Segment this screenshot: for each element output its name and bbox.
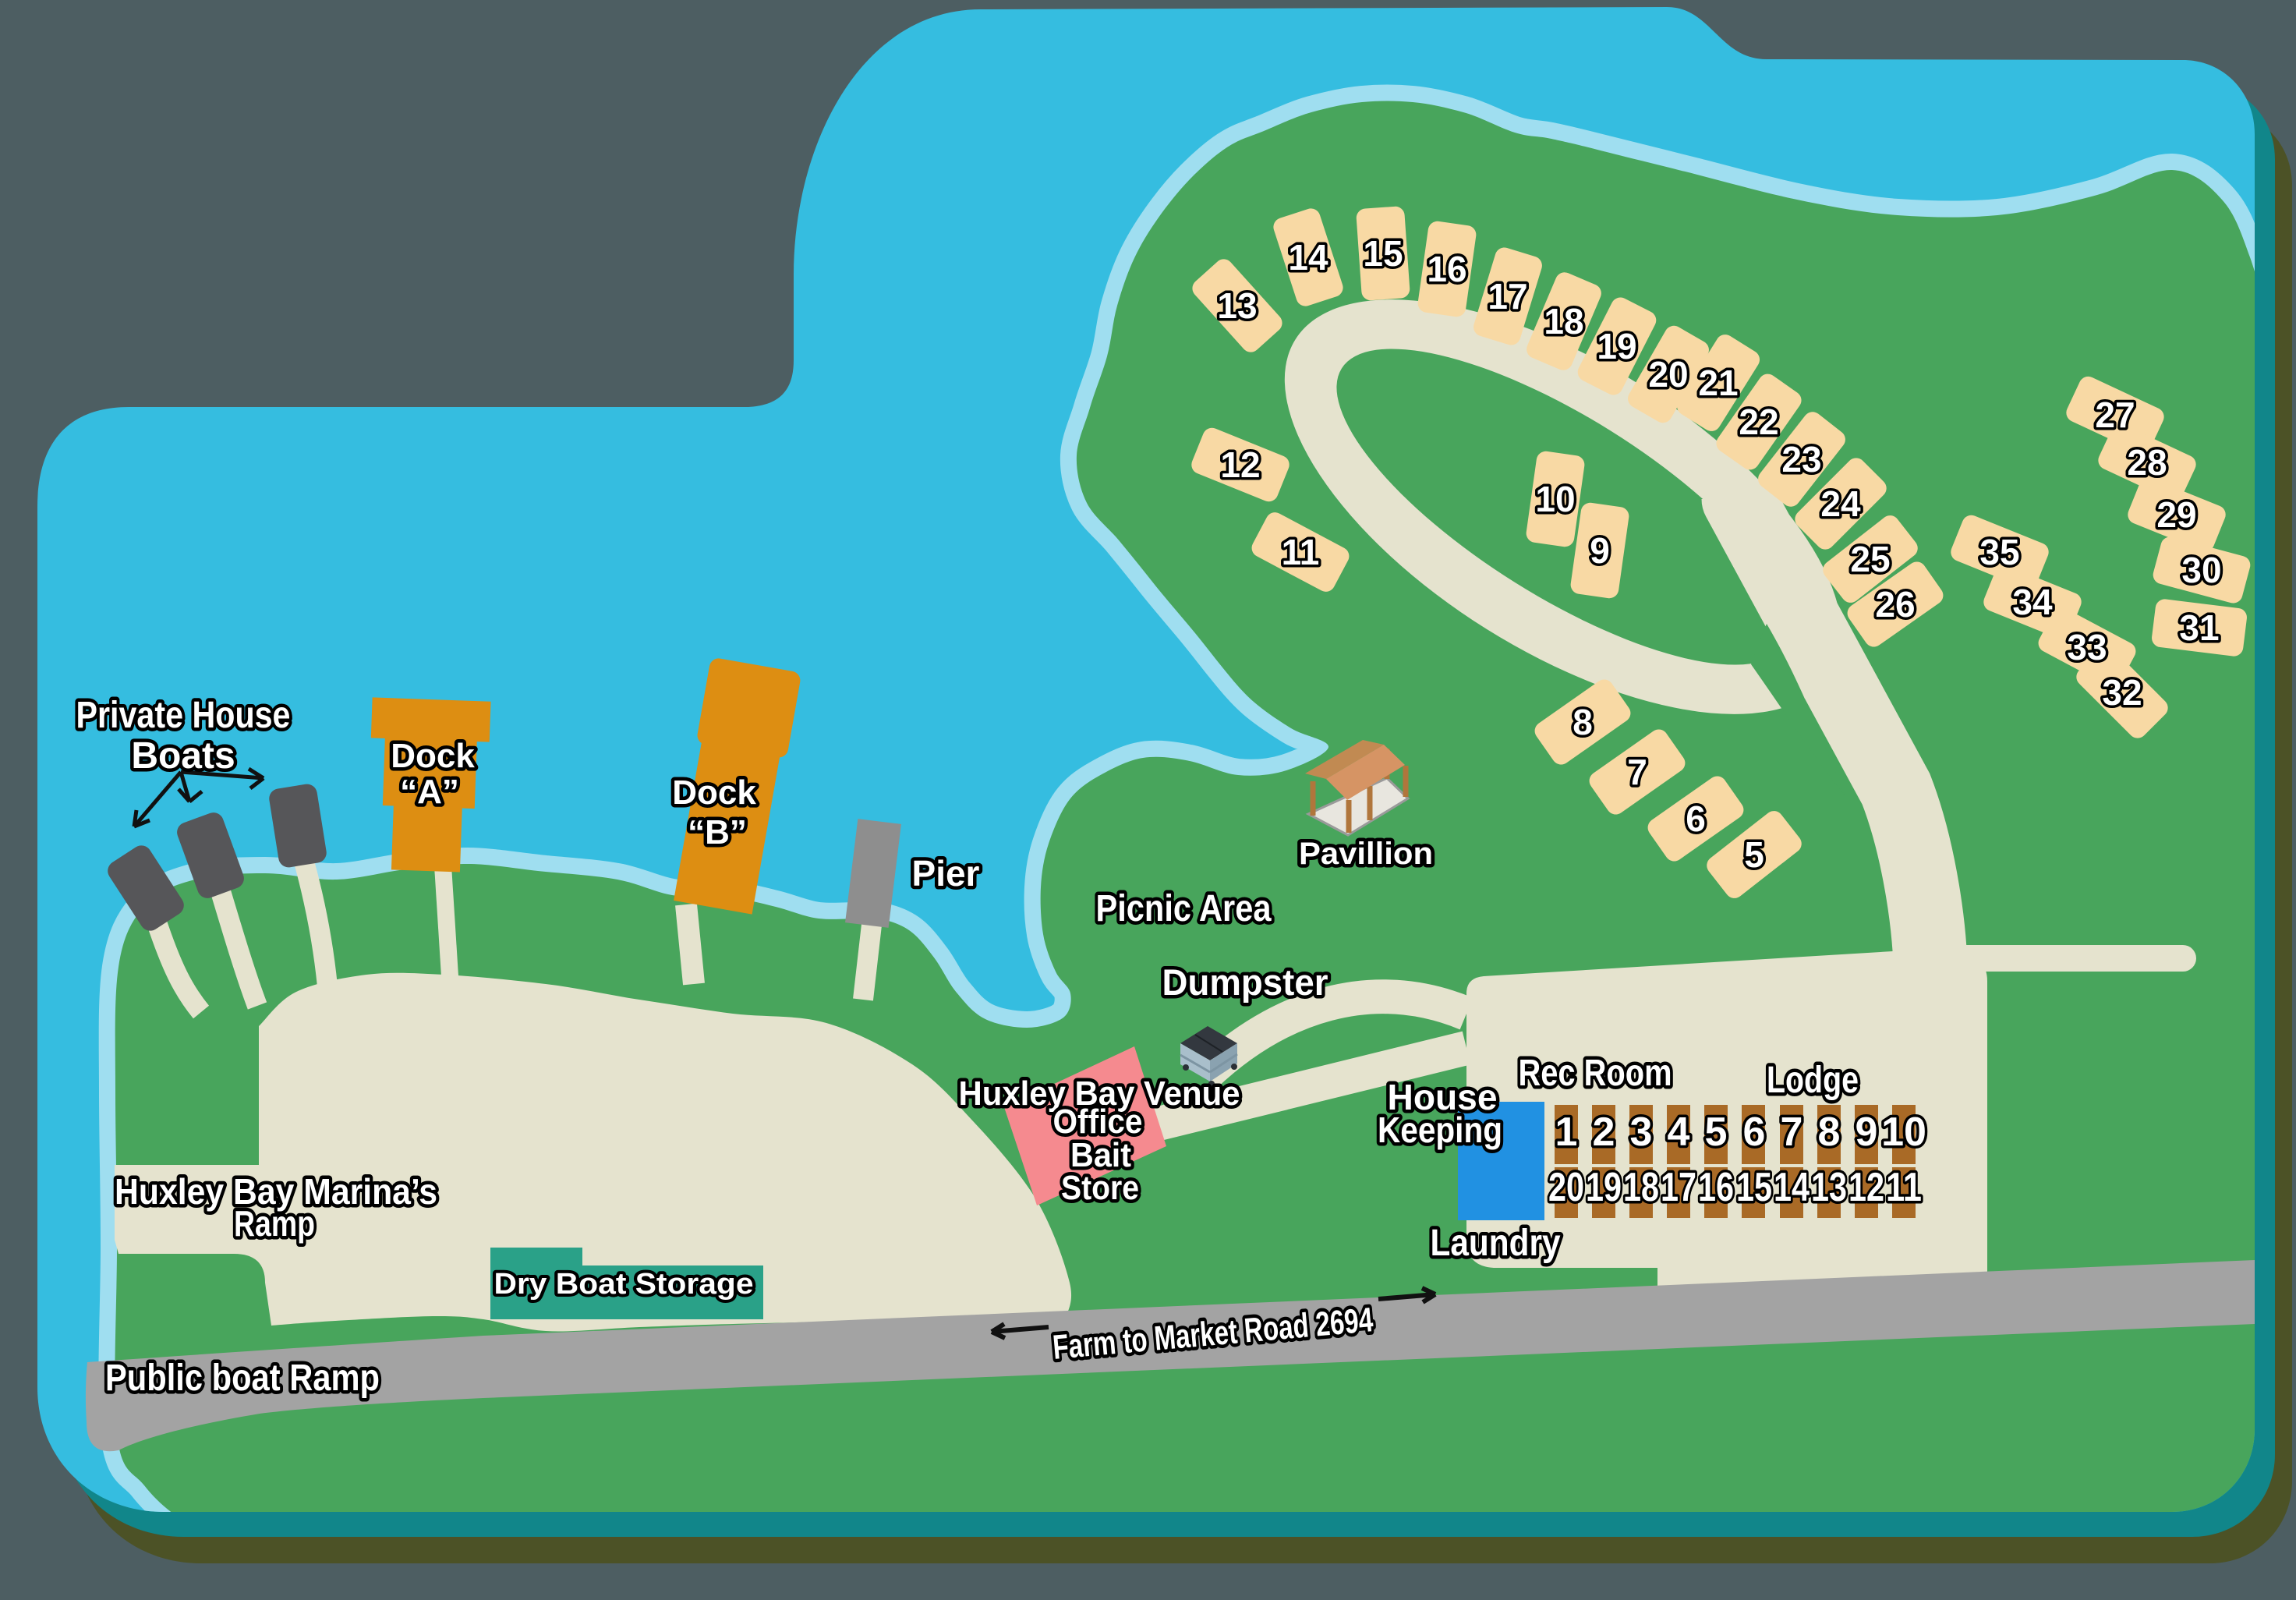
svg-text:12: 12 (1848, 1165, 1884, 1210)
svg-text:Office: Office (1053, 1103, 1143, 1141)
svg-text:5: 5 (1744, 834, 1764, 875)
svg-text:13: 13 (1811, 1165, 1847, 1210)
svg-text:17: 17 (1488, 276, 1527, 317)
svg-text:21: 21 (1698, 363, 1738, 403)
svg-text:33: 33 (2067, 627, 2107, 667)
svg-text:19: 19 (1586, 1165, 1622, 1210)
svg-text:Pier: Pier (912, 853, 980, 894)
svg-text:8: 8 (1818, 1110, 1841, 1155)
svg-text:16: 16 (1698, 1165, 1734, 1210)
svg-text:18: 18 (1623, 1165, 1659, 1210)
svg-text:1: 1 (1555, 1110, 1578, 1155)
svg-text:20: 20 (1648, 354, 1688, 395)
svg-text:24: 24 (1820, 483, 1861, 524)
svg-text:Private House: Private House (76, 695, 291, 736)
svg-text:25: 25 (1850, 539, 1890, 579)
svg-text:9: 9 (1590, 530, 1610, 571)
svg-text:“B”: “B” (688, 813, 747, 851)
svg-text:27: 27 (2095, 395, 2135, 435)
svg-text:Boats: Boats (131, 735, 235, 777)
svg-text:23: 23 (1781, 439, 1821, 480)
svg-text:20: 20 (1548, 1165, 1584, 1210)
svg-text:35: 35 (1979, 532, 2019, 572)
svg-text:Dock: Dock (391, 737, 475, 775)
svg-text:14: 14 (1288, 237, 1328, 278)
svg-text:10: 10 (1881, 1110, 1926, 1155)
svg-text:34: 34 (2012, 582, 2053, 622)
svg-text:31: 31 (2179, 607, 2219, 648)
svg-text:28: 28 (2127, 442, 2167, 483)
svg-text:17: 17 (1661, 1165, 1696, 1210)
svg-text:26: 26 (1875, 584, 1915, 625)
svg-text:12: 12 (1220, 444, 1260, 485)
svg-text:6: 6 (1743, 1110, 1766, 1155)
svg-text:Picnic Area: Picnic Area (1096, 888, 1272, 929)
svg-text:5: 5 (1705, 1110, 1728, 1155)
svg-text:Laundry: Laundry (1431, 1223, 1561, 1264)
svg-text:Ramp: Ramp (234, 1203, 315, 1244)
svg-text:9: 9 (1856, 1110, 1878, 1155)
svg-text:Rec Room: Rec Room (1519, 1053, 1672, 1094)
svg-text:13: 13 (1217, 285, 1257, 326)
svg-text:Dock: Dock (672, 773, 756, 812)
svg-text:4: 4 (1668, 1110, 1690, 1155)
svg-text:18: 18 (1544, 301, 1583, 342)
svg-text:14: 14 (1774, 1165, 1810, 1210)
svg-text:Dumpster: Dumpster (1162, 961, 1328, 1003)
svg-text:15: 15 (1363, 233, 1403, 274)
svg-text:6: 6 (1686, 798, 1706, 839)
svg-text:15: 15 (1736, 1165, 1772, 1210)
svg-text:“A”: “A” (400, 773, 459, 811)
svg-text:2: 2 (1593, 1110, 1615, 1155)
svg-text:Keeping: Keeping (1378, 1110, 1502, 1150)
svg-text:16: 16 (1427, 249, 1466, 289)
svg-text:19: 19 (1597, 326, 1636, 366)
svg-text:11: 11 (1886, 1165, 1922, 1210)
svg-text:11: 11 (1282, 532, 1320, 572)
svg-text:32: 32 (2102, 672, 2142, 713)
svg-text:10: 10 (1535, 479, 1575, 519)
svg-text:8: 8 (1573, 702, 1593, 742)
svg-text:Pavillion: Pavillion (1299, 837, 1433, 871)
svg-text:7: 7 (1781, 1110, 1803, 1155)
svg-text:30: 30 (2181, 550, 2221, 590)
svg-text:Store: Store (1061, 1169, 1139, 1207)
svg-text:Public boat Ramp: Public boat Ramp (105, 1358, 380, 1399)
svg-text:22: 22 (1739, 402, 1778, 442)
svg-text:Dry Boat Storage: Dry Boat Storage (494, 1268, 754, 1301)
svg-text:7: 7 (1627, 752, 1647, 792)
svg-text:Lodge: Lodge (1767, 1060, 1859, 1101)
svg-text:29: 29 (2156, 494, 2196, 535)
svg-text:3: 3 (1630, 1110, 1653, 1155)
